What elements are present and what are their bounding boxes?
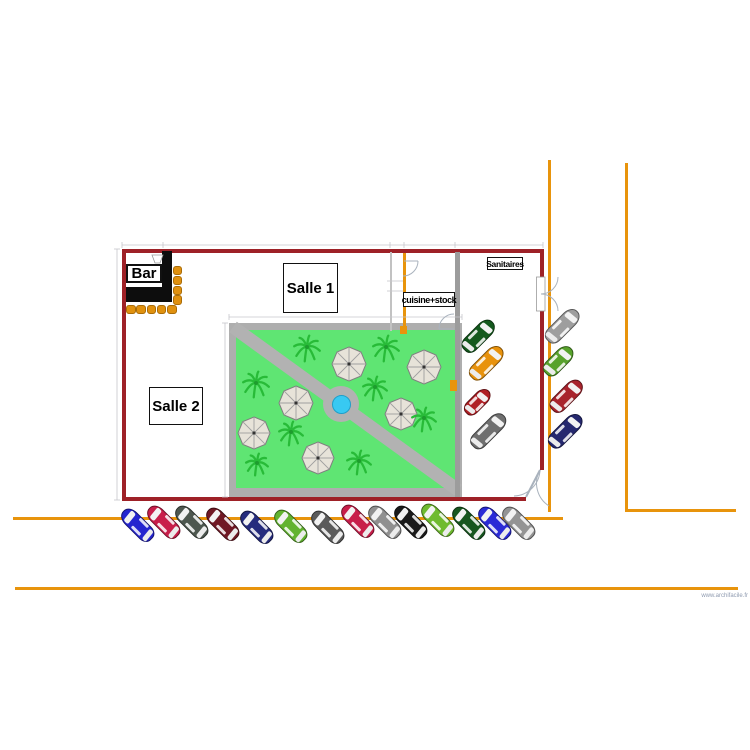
car-body	[202, 504, 242, 544]
wall-cuisine-left	[390, 252, 392, 331]
parasol-icon	[236, 415, 272, 451]
door-swing-arc	[514, 470, 540, 496]
bar-stool	[126, 305, 136, 315]
bar-stool	[173, 276, 183, 286]
car	[236, 507, 276, 547]
wall-bottom	[122, 497, 526, 501]
bar-stool	[167, 305, 177, 315]
car	[539, 342, 576, 379]
wall-left	[122, 249, 126, 500]
road-marker-2	[450, 380, 457, 391]
palm-tree-icon	[343, 445, 375, 477]
fountain-pool	[332, 395, 351, 414]
palm-tree-icon	[369, 330, 403, 364]
floor-plan-canvas: Bar Salle 1 Salle 2 cuisine+stock Sanita…	[0, 0, 750, 750]
bar-stool	[147, 305, 157, 315]
wall-top	[122, 249, 543, 253]
door-swing-arc	[526, 470, 540, 497]
car-body	[546, 376, 586, 416]
room-label-sanitaires: Sanitaires	[487, 257, 523, 270]
car-body	[460, 385, 493, 418]
room-label-salle1: Salle 1	[283, 263, 338, 313]
room-label-cuisine-stock: cuisine+stock	[403, 292, 455, 307]
car	[270, 506, 310, 546]
wall-right	[540, 249, 544, 470]
palm-tree-icon	[359, 371, 391, 403]
bar-stool	[136, 305, 146, 315]
car-body	[236, 507, 276, 547]
palm-tree-icon	[275, 416, 307, 448]
watermark-text: www.archifacile.fr	[701, 593, 748, 599]
wall-interior-vertical	[455, 252, 460, 497]
car	[546, 376, 586, 416]
palm-tree-icon	[408, 402, 440, 434]
parasol-icon	[405, 348, 443, 386]
bar-counter-horizontal	[126, 287, 172, 302]
car-body	[270, 506, 310, 546]
road-horizontal-bottom	[15, 587, 738, 590]
car-body	[539, 342, 576, 379]
room-label-bar: Bar	[126, 264, 162, 283]
palm-tree-icon	[239, 366, 273, 400]
bar-stool	[173, 286, 183, 296]
bar-stool	[173, 295, 183, 305]
car	[460, 385, 493, 418]
car	[202, 504, 242, 544]
bar-stool	[157, 305, 167, 315]
palm-tree-icon	[242, 448, 272, 478]
road-vertical-2	[625, 163, 628, 511]
bar-stool	[173, 266, 183, 276]
road-horizontal-right	[625, 509, 736, 512]
room-label-salle2: Salle 2	[149, 387, 203, 425]
palm-tree-icon	[290, 330, 324, 364]
